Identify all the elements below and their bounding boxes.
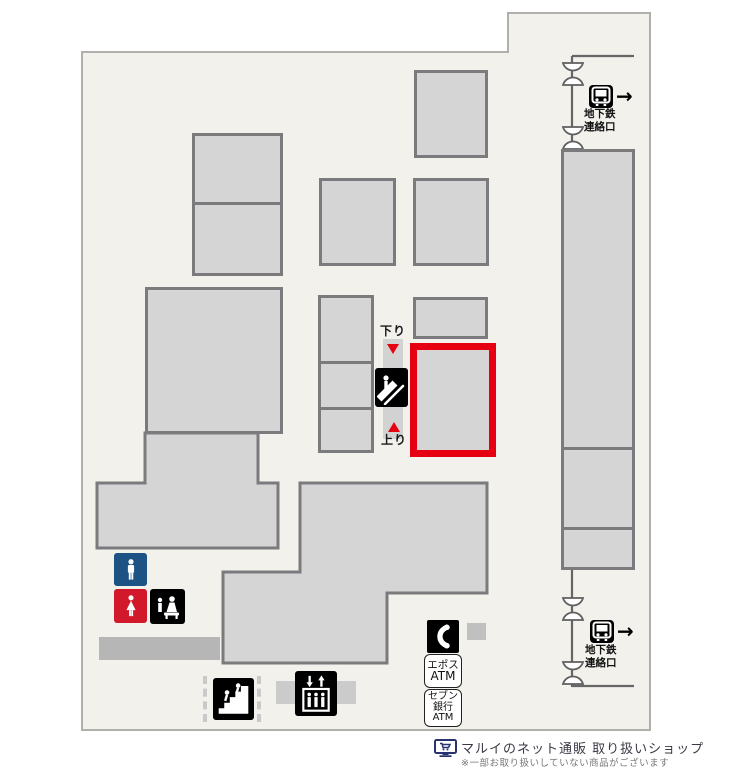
stairs-marking <box>257 676 261 722</box>
subway-label-line1: 地下鉄 <box>585 644 617 656</box>
elevator-icon <box>295 671 337 716</box>
shop-block <box>145 287 283 434</box>
subway-entrance-label: 地下鉄 連絡口 <box>584 108 616 134</box>
shop-block <box>414 70 488 158</box>
shop-block <box>319 178 396 266</box>
down-arrow-icon <box>387 344 399 354</box>
shop-block <box>318 295 374 364</box>
service-counter-bar <box>99 637 220 660</box>
shop-block <box>413 297 488 339</box>
seven-bank-atm-box[interactable]: セブン 銀行 ATM <box>424 689 462 727</box>
legend-note: ※一部お取り扱いしていない商品がございます <box>461 755 669 769</box>
subway-entrance-label: 地下鉄 連絡口 <box>585 644 617 670</box>
phone-booth-area <box>467 623 486 640</box>
seven-bank-label-3: ATM <box>433 713 454 724</box>
shop-block <box>192 202 283 276</box>
net-shop-icon <box>434 739 458 758</box>
subway-label-line1: 地下鉄 <box>584 108 616 120</box>
right-arrow-icon: → <box>616 86 633 106</box>
stairs-icon <box>213 678 254 720</box>
epos-atm-label-2: ATM <box>431 671 456 683</box>
highlighted-shop-area[interactable] <box>410 343 496 457</box>
baby-care-icon <box>150 589 185 624</box>
shop-block <box>318 407 374 453</box>
floor-map: 下り 上り → 地下鉄 連絡口 → 地下 <box>0 0 730 770</box>
escalator-down-label: 下り <box>380 322 406 339</box>
subway-label-line2: 連絡口 <box>585 657 617 669</box>
subway-label-line2: 連絡口 <box>584 121 616 133</box>
shop-block <box>413 178 489 266</box>
right-arrow-icon: → <box>617 621 634 641</box>
escalator-icon <box>375 368 408 407</box>
train-icon <box>590 620 614 643</box>
womens-toilet-icon <box>114 589 147 623</box>
shop-block <box>318 361 374 410</box>
stairs-marking <box>203 676 207 722</box>
phone-icon <box>427 620 459 653</box>
epos-atm-box[interactable]: エポス ATM <box>424 654 462 688</box>
shop-block <box>561 149 635 450</box>
mens-toilet-icon <box>114 553 147 586</box>
shop-block <box>561 447 635 530</box>
escalator-up-label: 上り <box>381 431 407 448</box>
shop-block <box>192 133 283 205</box>
shop-block <box>561 527 635 570</box>
train-icon <box>589 85 613 108</box>
